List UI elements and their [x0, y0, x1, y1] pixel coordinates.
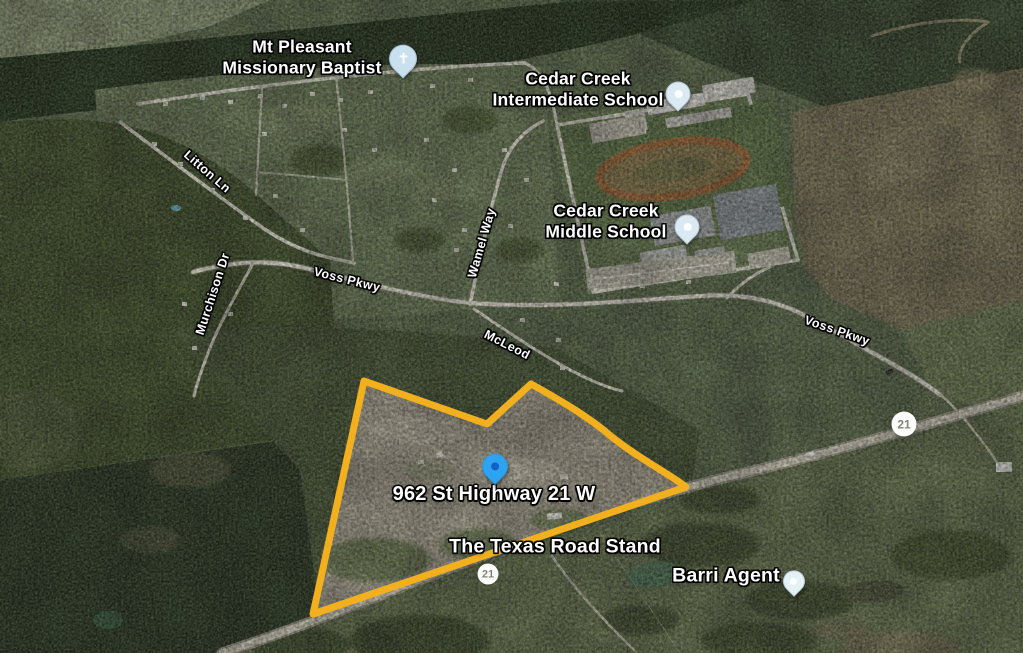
pin-dot-icon: [683, 223, 691, 231]
poi-label-barri-agent[interactable]: Barri Agent: [672, 565, 780, 588]
poi-label-cedar-creek-middle-school[interactable]: Cedar Creek Middle School: [545, 200, 666, 241]
pin-shape: ✝: [383, 39, 423, 79]
intermediate-school-pin[interactable]: [666, 82, 691, 107]
pin-dot-icon: [674, 90, 682, 98]
poi-label-cedar-creek-intermediate-school[interactable]: Cedar Creek Intermediate School: [492, 68, 663, 109]
highway-21-shield-east: 21: [892, 412, 917, 437]
pin-dot-icon: [491, 462, 499, 470]
middle-school-pin[interactable]: [675, 215, 700, 240]
highway-21-shield-south: 21: [478, 564, 499, 585]
church-pin[interactable]: ✝: [389, 45, 417, 73]
poi-label-texas-road-stand[interactable]: The Texas Road Stand: [449, 536, 661, 559]
property-address-label[interactable]: 962 St Highway 21 W: [393, 483, 596, 507]
pin-shape: [477, 448, 514, 485]
property-location-pin[interactable]: [482, 454, 508, 480]
pin-shape: [660, 76, 695, 111]
pin-dot-icon: [790, 578, 797, 585]
satellite-map-canvas[interactable]: Litton Ln Murchison Dr Voss Pkwy Wamel W…: [0, 0, 1023, 653]
barri-agent-pin[interactable]: [783, 570, 805, 592]
pin-shape: [669, 209, 704, 244]
church-cross-icon: ✝: [397, 51, 410, 66]
poi-label-mt-pleasant-missionary-baptist[interactable]: Mt Pleasant Missionary Baptist: [222, 36, 381, 77]
pin-shape: [778, 566, 809, 597]
